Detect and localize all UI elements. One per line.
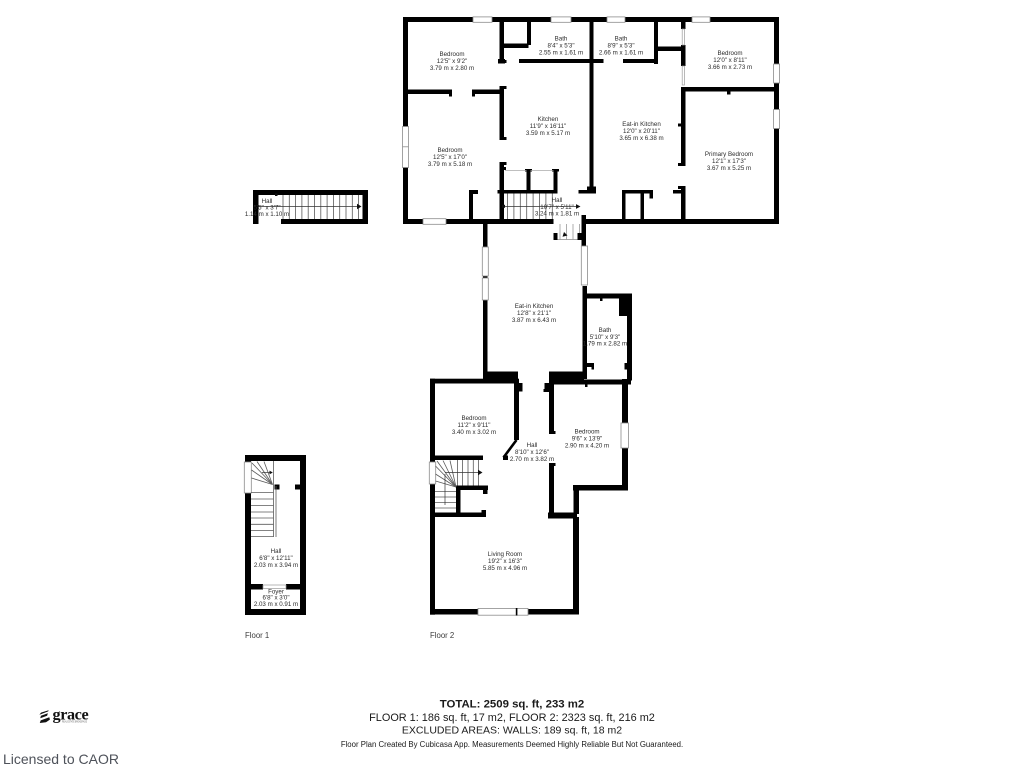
svg-text:Living Room19'2" x 16'3"5.85 m: Living Room19'2" x 16'3"5.85 m x 4.96 m (483, 551, 527, 572)
svg-text:Eat-in Kitchen12'0" x 20'11"3.: Eat-in Kitchen12'0" x 20'11"3.65 m x 6.3… (619, 121, 663, 142)
svg-text:Primary Bedroom12'1" x 17'3"3.: Primary Bedroom12'1" x 17'3"3.67 m x 5.2… (705, 151, 753, 172)
svg-text:Floor Plan Created By Cubicasa: Floor Plan Created By Cubicasa App. Meas… (341, 740, 683, 749)
svg-text:TOTAL: 2509 sq. ft, 233 m2: TOTAL: 2509 sq. ft, 233 m2 (440, 699, 585, 711)
svg-text:EXCLUDED AREAS: WALLS: 189 sq.: EXCLUDED AREAS: WALLS: 189 sq. ft, 18 m2 (402, 725, 622, 737)
svg-text:Floor 2: Floor 2 (430, 631, 454, 640)
svg-text:FLOOR 1: 186 sq. ft, 17 m2, FL: FLOOR 1: 186 sq. ft, 17 m2, FLOOR 2: 232… (369, 712, 655, 724)
svg-text:Floor 1: Floor 1 (245, 631, 269, 640)
svg-text:REAL ESTATE BROKERAGE: REAL ESTATE BROKERAGE (62, 720, 87, 723)
svg-text:Eat-in Kitchen12'8" x 21'1"3.8: Eat-in Kitchen12'8" x 21'1"3.87 m x 6.43… (512, 303, 556, 324)
svg-text:Licensed to CAOR: Licensed to CAOR (3, 751, 119, 767)
